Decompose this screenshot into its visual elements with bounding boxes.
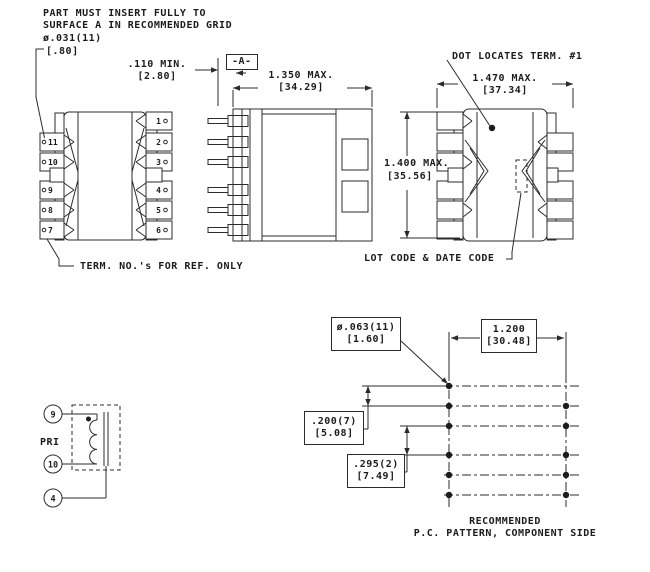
height-dimension-metric: [35.56] xyxy=(387,171,433,183)
pin-number-label: 8 xyxy=(48,206,53,215)
pattern-hole xyxy=(563,492,569,498)
pc-caption-line2: P.C. PATTERN, COMPONENT SIDE xyxy=(395,528,615,540)
schematic-outline xyxy=(72,405,120,470)
pattern-hole xyxy=(446,452,452,458)
width-side-dimension: 1.350 MAX. [34.29] xyxy=(245,70,357,94)
primary-winding-label: PRI xyxy=(40,437,60,449)
pattern-hole xyxy=(563,423,569,429)
pin-dot xyxy=(42,228,46,232)
insert-note-line1: PART MUST INSERT FULLY TO xyxy=(43,8,206,20)
pin-dot xyxy=(42,208,46,212)
engineering-drawing-page: 11109871234569104 PART MUST INSERT FULLY… xyxy=(0,0,650,572)
dot-locates-note: DOT LOCATES TERM. #1 xyxy=(452,51,582,63)
pin-dot xyxy=(164,208,168,212)
pc-caption-line1: RECOMMENDED xyxy=(395,516,615,528)
pattern-hole xyxy=(446,492,452,498)
centerlines xyxy=(444,372,580,507)
row-span-dimension: 1.200 [30.48] xyxy=(481,319,537,353)
terminal-number-label: 9 xyxy=(50,411,55,421)
height-dimension-value: 1.400 MAX. xyxy=(384,158,449,170)
pin-number-label: 5 xyxy=(156,206,161,215)
term-ref-note: TERM. NO.'s FOR REF. ONLY xyxy=(80,261,243,273)
side-view-figure xyxy=(208,109,372,241)
pattern-hole xyxy=(446,403,452,409)
lot-code-note: LOT CODE & DATE CODE xyxy=(364,253,494,265)
pattern-hole xyxy=(563,403,569,409)
pin-dot xyxy=(42,188,46,192)
pattern-holes xyxy=(446,383,569,498)
pin-number-label: 6 xyxy=(156,226,161,235)
terminal-number-label: 10 xyxy=(48,461,58,471)
pin-number-label: 4 xyxy=(156,186,161,195)
hole-callout-leader xyxy=(36,49,45,138)
pin-number-label: 11 xyxy=(48,138,58,147)
width-bottom-dimension: 1.470 MAX. [37.34] xyxy=(450,73,560,97)
pc-pattern xyxy=(444,372,580,507)
pin-number-label: 7 xyxy=(48,226,53,235)
pin-number-label: 2 xyxy=(156,138,161,147)
winding-coil xyxy=(90,420,97,464)
pin-dot xyxy=(164,119,168,123)
pattern-hole xyxy=(446,383,452,389)
pc-hole-leader xyxy=(401,341,445,382)
term-ref-leader xyxy=(47,239,74,266)
pin-dot xyxy=(164,188,168,192)
standoff-dimension: .110 MIN. [2.80] xyxy=(124,59,190,83)
pin-number-label: 10 xyxy=(48,158,58,167)
pin-dot xyxy=(42,160,46,164)
hole-dia-top-metric: [.80] xyxy=(46,46,79,58)
pin-dot xyxy=(164,140,168,144)
datum-a-flag: -A- xyxy=(226,54,258,70)
pin-dot xyxy=(164,160,168,164)
pc-hole-dimension: ø.063(11) [1.60] xyxy=(331,317,401,351)
gap-pitch-dimension: .295(2) [7.49] xyxy=(347,454,405,488)
pin-number-label: 1 xyxy=(156,117,161,126)
top-view-figure xyxy=(40,112,172,240)
bottom-view-figure xyxy=(437,109,573,241)
terminal-number-label: 4 xyxy=(50,495,55,505)
pattern-hole xyxy=(563,472,569,478)
pin-number-label: 3 xyxy=(156,158,161,167)
pin-number-label: 9 xyxy=(48,186,53,195)
polarity-dot xyxy=(86,417,91,422)
pitch-dimension: .200(7) [5.08] xyxy=(304,411,364,445)
pattern-hole xyxy=(446,472,452,478)
pattern-hole xyxy=(563,452,569,458)
hole-dia-top-value: ø.031(11) xyxy=(43,33,102,45)
pattern-hole xyxy=(446,423,452,429)
pin-dot xyxy=(42,140,46,144)
pin-dot xyxy=(164,228,168,232)
insert-note-line2: SURFACE A IN RECOMMENDED GRID xyxy=(43,20,232,32)
